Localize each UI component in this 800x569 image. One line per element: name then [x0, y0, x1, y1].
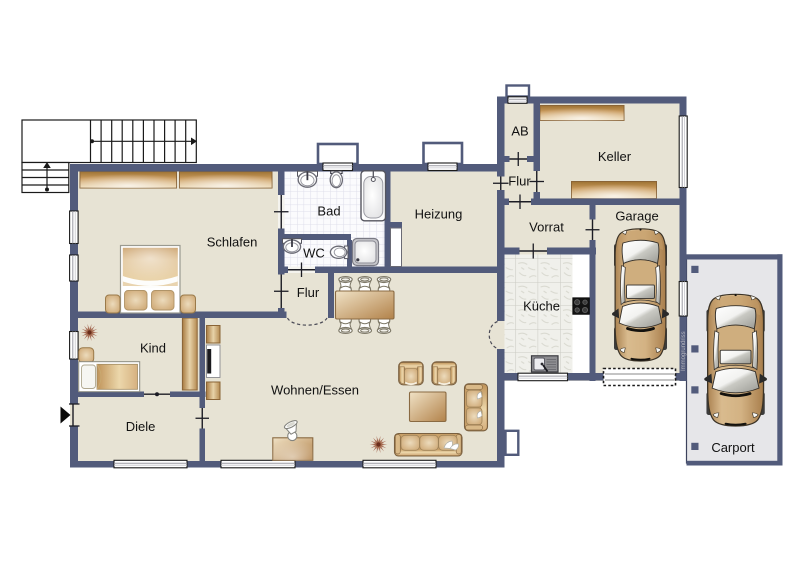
- svg-text:Wohnen/Essen: Wohnen/Essen: [271, 383, 359, 398]
- svg-text:Immogrundriss: Immogrundriss: [681, 331, 687, 371]
- svg-text:Flur: Flur: [297, 285, 320, 300]
- svg-text:Keller: Keller: [598, 149, 632, 164]
- svg-text:WC: WC: [303, 246, 325, 261]
- svg-text:AB: AB: [511, 124, 528, 139]
- svg-text:Vorrat: Vorrat: [529, 220, 564, 235]
- svg-text:Küche: Küche: [523, 299, 560, 314]
- svg-text:Heizung: Heizung: [415, 207, 463, 222]
- svg-text:Diele: Diele: [126, 419, 156, 434]
- svg-text:Schlafen: Schlafen: [207, 235, 258, 250]
- svg-text:Kind: Kind: [140, 341, 166, 356]
- svg-text:Bad: Bad: [317, 204, 340, 219]
- svg-text:Flur: Flur: [508, 174, 531, 189]
- svg-text:Carport: Carport: [711, 440, 755, 455]
- svg-text:Garage: Garage: [615, 209, 658, 224]
